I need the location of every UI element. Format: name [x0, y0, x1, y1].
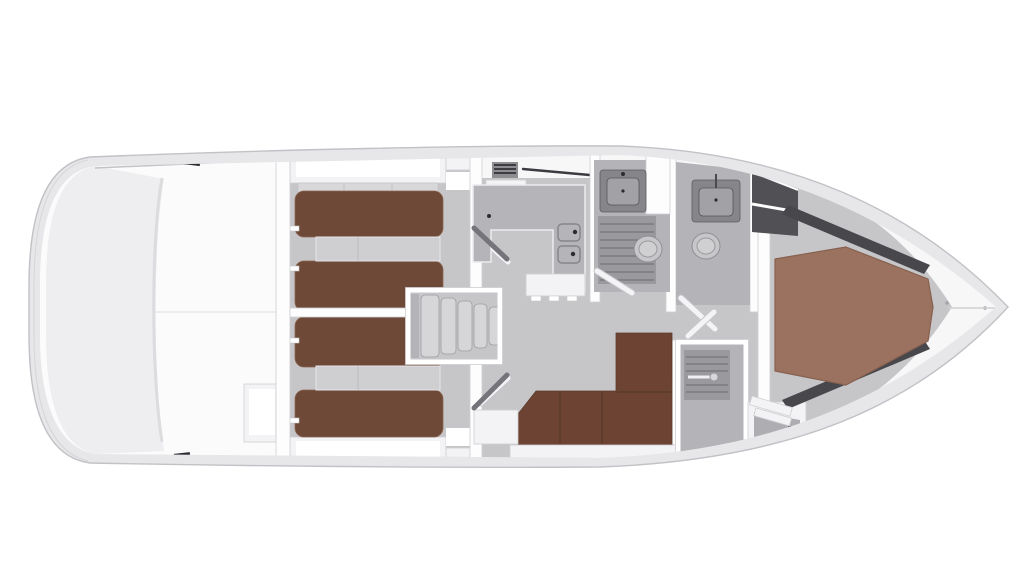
galley-hob-knob-1	[573, 230, 577, 234]
galley-hob-knob-2	[571, 252, 575, 256]
forward-head	[676, 162, 750, 329]
bow-fitting-1	[945, 301, 949, 305]
stair-step-2	[441, 298, 456, 354]
stair-step-3	[458, 301, 472, 351]
forward-head-toilet	[692, 233, 720, 259]
galley-foot-2	[549, 296, 559, 301]
yacht-floorplan-stage	[0, 0, 1024, 576]
stair-step-4	[474, 304, 487, 348]
companionway-stairs	[406, 288, 503, 365]
garage-step-box	[244, 384, 280, 442]
stair-step-1	[421, 295, 439, 357]
mid-head-sink	[600, 170, 646, 212]
galley-lower-cabinet	[526, 274, 585, 296]
galley-foot-1	[531, 296, 541, 301]
aft-box-bottom-1	[446, 428, 472, 446]
shower-grating	[684, 350, 730, 400]
mid-head	[594, 152, 670, 293]
galley-vent-grille	[492, 162, 518, 178]
galley-foot-3	[567, 296, 577, 301]
mid-head-corner-wall	[646, 152, 670, 214]
nightstand-stbd	[316, 366, 440, 390]
nightstand-port	[316, 237, 440, 261]
mid-head-toilet	[634, 236, 662, 262]
salon-side-cabinet	[474, 410, 518, 444]
galley-fitting-dot	[487, 214, 491, 218]
forward-head-sink	[692, 174, 740, 222]
berth-stbd-outer	[295, 390, 443, 437]
wall-garage-aftcabin	[276, 150, 290, 468]
yacht-deck-plan-render	[0, 0, 1024, 576]
berth-port-outer	[295, 191, 443, 237]
garage-left-shading	[46, 166, 164, 454]
aft-box-top-2	[446, 172, 472, 190]
